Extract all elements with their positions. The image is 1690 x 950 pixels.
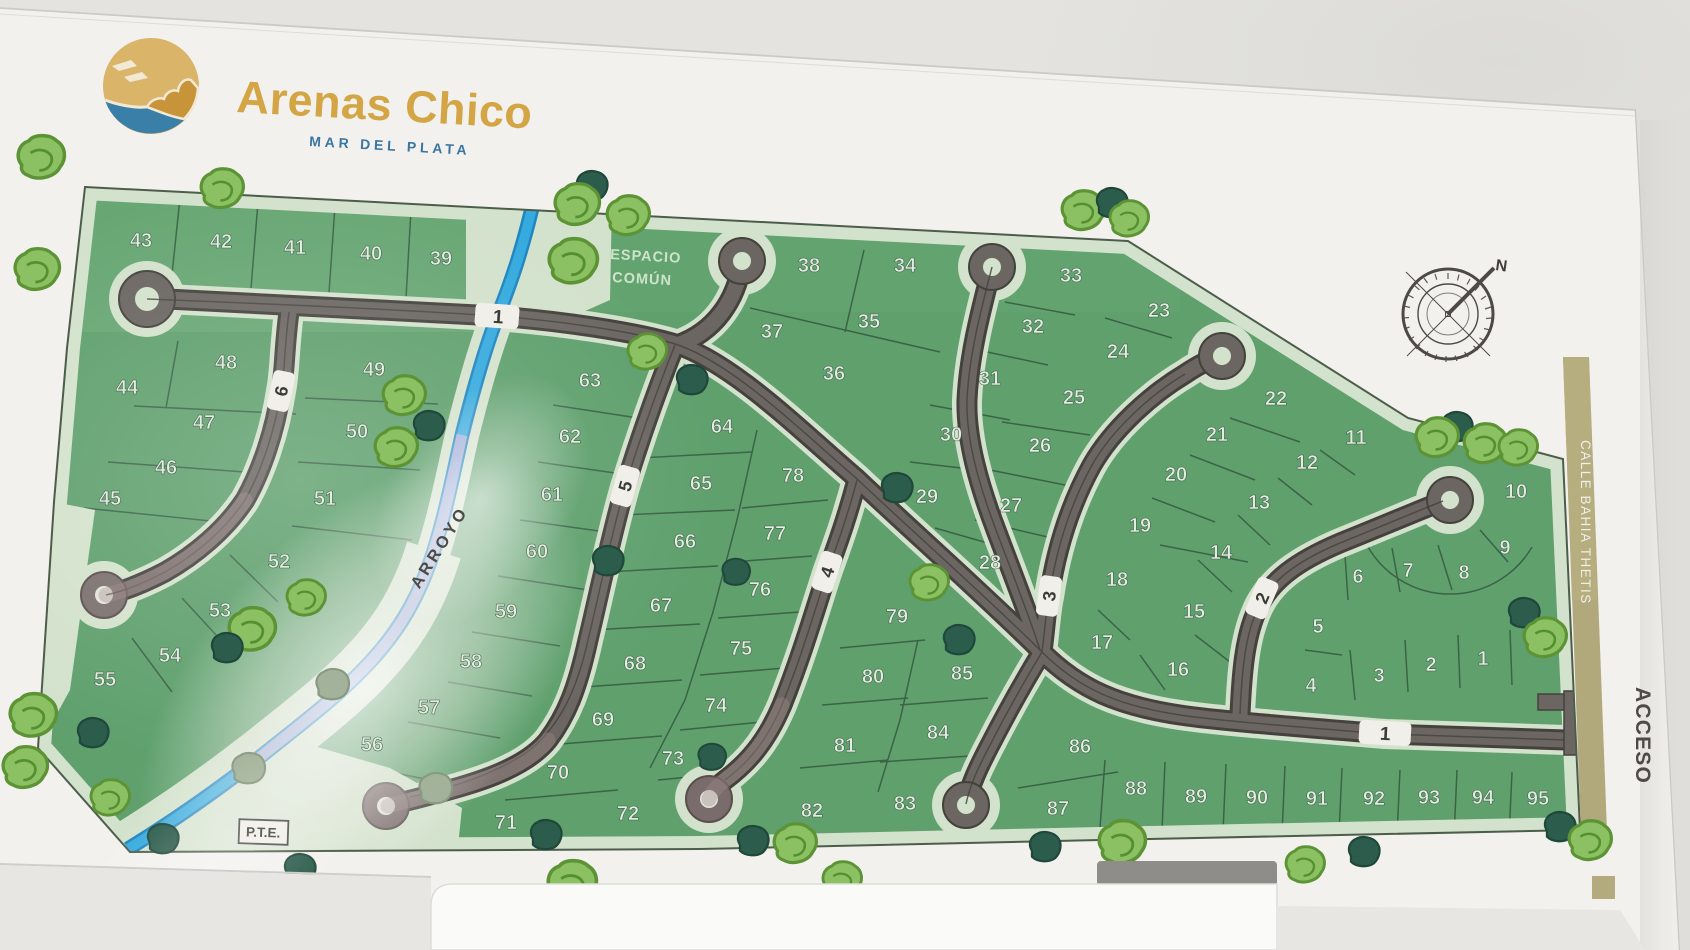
svg-text:57: 57 xyxy=(418,697,440,719)
svg-text:29: 29 xyxy=(916,486,938,508)
svg-text:21: 21 xyxy=(1206,424,1228,446)
svg-text:8: 8 xyxy=(1458,562,1469,584)
svg-text:71: 71 xyxy=(495,812,517,834)
svg-text:49: 49 xyxy=(363,359,385,381)
svg-text:15: 15 xyxy=(1183,601,1205,623)
svg-text:12: 12 xyxy=(1296,452,1318,474)
svg-text:28: 28 xyxy=(979,552,1001,574)
svg-text:73: 73 xyxy=(662,748,684,770)
svg-text:83: 83 xyxy=(894,793,916,815)
svg-text:22: 22 xyxy=(1265,388,1287,410)
svg-text:88: 88 xyxy=(1125,778,1147,800)
svg-text:75: 75 xyxy=(730,638,752,660)
svg-text:5: 5 xyxy=(1312,616,1323,638)
svg-text:27: 27 xyxy=(1000,495,1022,517)
svg-text:37: 37 xyxy=(761,321,783,343)
svg-text:65: 65 xyxy=(690,473,712,495)
svg-text:41: 41 xyxy=(284,237,306,259)
svg-text:13: 13 xyxy=(1248,492,1270,514)
svg-text:54: 54 xyxy=(159,645,182,667)
svg-text:18: 18 xyxy=(1106,569,1128,591)
svg-text:82: 82 xyxy=(801,800,823,822)
svg-text:58: 58 xyxy=(460,651,482,673)
svg-text:50: 50 xyxy=(346,421,368,443)
svg-text:68: 68 xyxy=(624,653,646,675)
svg-text:26: 26 xyxy=(1029,435,1051,457)
svg-text:53: 53 xyxy=(209,600,231,622)
svg-text:89: 89 xyxy=(1185,786,1207,808)
svg-text:35: 35 xyxy=(858,311,880,333)
svg-text:70: 70 xyxy=(547,762,569,784)
svg-text:55: 55 xyxy=(94,669,116,691)
svg-text:80: 80 xyxy=(862,666,884,688)
svg-text:60: 60 xyxy=(526,541,548,563)
svg-text:43: 43 xyxy=(130,230,152,252)
svg-text:46: 46 xyxy=(155,457,177,479)
svg-text:76: 76 xyxy=(749,579,771,601)
svg-text:1: 1 xyxy=(1477,648,1488,670)
svg-text:1: 1 xyxy=(492,307,504,329)
svg-text:1: 1 xyxy=(1379,724,1391,746)
svg-text:ACCESO: ACCESO xyxy=(1631,687,1654,784)
svg-text:78: 78 xyxy=(782,465,804,487)
svg-text:52: 52 xyxy=(268,551,290,573)
svg-text:6: 6 xyxy=(1352,566,1363,588)
svg-text:64: 64 xyxy=(711,416,734,438)
svg-text:39: 39 xyxy=(430,248,452,270)
svg-text:23: 23 xyxy=(1148,300,1170,322)
svg-text:19: 19 xyxy=(1129,515,1151,537)
svg-text:91: 91 xyxy=(1306,788,1328,810)
svg-text:10: 10 xyxy=(1505,481,1527,503)
svg-text:93: 93 xyxy=(1418,787,1440,809)
svg-text:42: 42 xyxy=(210,231,232,253)
svg-text:92: 92 xyxy=(1363,788,1385,810)
svg-text:31: 31 xyxy=(979,368,1001,390)
svg-text:63: 63 xyxy=(579,370,601,392)
svg-text:87: 87 xyxy=(1047,798,1069,820)
svg-text:86: 86 xyxy=(1069,736,1091,758)
svg-text:7: 7 xyxy=(1402,560,1413,582)
svg-text:94: 94 xyxy=(1472,787,1495,809)
svg-text:3: 3 xyxy=(1373,665,1384,687)
svg-text:34: 34 xyxy=(894,255,917,277)
svg-text:85: 85 xyxy=(951,663,973,685)
svg-text:79: 79 xyxy=(886,606,908,628)
svg-text:95: 95 xyxy=(1527,788,1549,810)
svg-text:61: 61 xyxy=(541,484,563,506)
svg-text:69: 69 xyxy=(592,709,614,731)
svg-text:14: 14 xyxy=(1210,542,1233,564)
svg-text:67: 67 xyxy=(650,595,672,617)
svg-text:25: 25 xyxy=(1063,387,1085,409)
svg-text:11: 11 xyxy=(1345,427,1366,449)
svg-text:40: 40 xyxy=(360,243,382,265)
svg-text:48: 48 xyxy=(215,352,237,374)
svg-text:2: 2 xyxy=(1425,654,1436,676)
svg-text:77: 77 xyxy=(764,523,786,545)
svg-text:20: 20 xyxy=(1165,464,1187,486)
svg-text:51: 51 xyxy=(314,488,336,510)
svg-text:30: 30 xyxy=(940,424,962,446)
svg-text:81: 81 xyxy=(834,735,856,757)
svg-text:33: 33 xyxy=(1060,265,1082,287)
svg-text:N: N xyxy=(1494,257,1508,275)
svg-text:47: 47 xyxy=(193,412,215,434)
svg-text:72: 72 xyxy=(617,803,639,825)
svg-text:84: 84 xyxy=(927,722,950,744)
svg-text:32: 32 xyxy=(1022,316,1044,338)
svg-text:90: 90 xyxy=(1246,787,1268,809)
svg-text:74: 74 xyxy=(705,695,728,717)
svg-text:38: 38 xyxy=(798,255,820,277)
svg-text:45: 45 xyxy=(99,488,121,510)
svg-text:44: 44 xyxy=(116,377,139,399)
svg-text:CALLE BAHIA THETIS: CALLE BAHIA THETIS xyxy=(1578,440,1593,605)
svg-text:9: 9 xyxy=(1499,537,1510,559)
svg-text:62: 62 xyxy=(559,426,581,448)
svg-text:36: 36 xyxy=(823,363,845,385)
svg-text:16: 16 xyxy=(1167,659,1189,681)
svg-text:66: 66 xyxy=(674,531,696,553)
svg-text:24: 24 xyxy=(1107,341,1130,363)
svg-text:59: 59 xyxy=(495,601,517,623)
svg-text:17: 17 xyxy=(1091,632,1113,654)
svg-text:4: 4 xyxy=(1305,675,1317,697)
